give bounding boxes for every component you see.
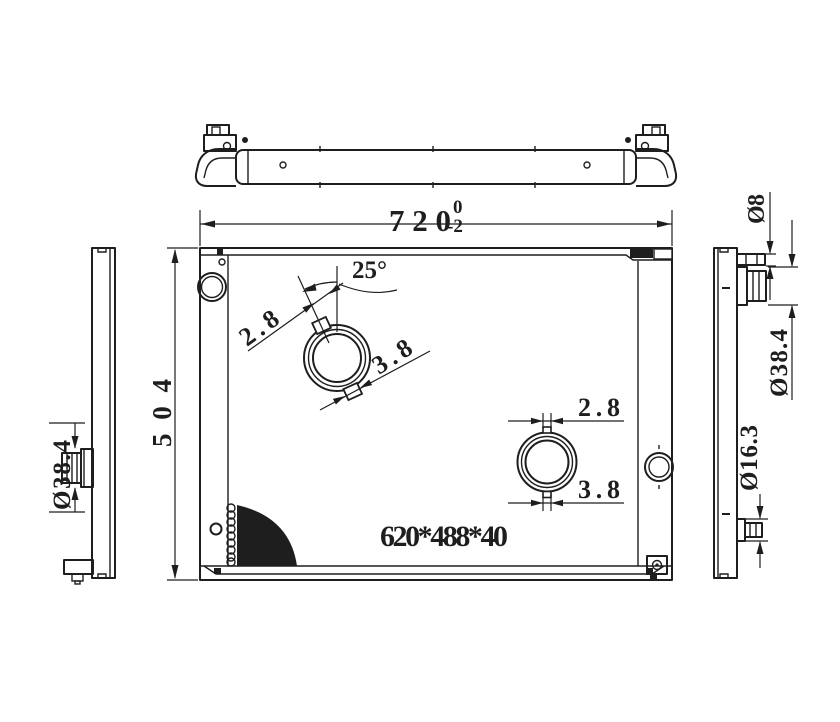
neck2-stub-bottom <box>543 492 551 498</box>
arrowhead-bottom <box>172 565 179 579</box>
arrowhead <box>757 541 764 554</box>
drain-diameter-value: Ø16.3 <box>736 425 763 491</box>
arrowhead <box>531 418 543 424</box>
dim-neck2-b: 3.8 <box>508 475 624 511</box>
top-right-pad <box>654 249 672 259</box>
drain-flange-cap <box>737 519 745 541</box>
arrowhead <box>789 254 796 267</box>
mount-pin <box>75 581 80 584</box>
extension-lines <box>768 267 798 305</box>
dim-neck-angle: 25° <box>298 257 397 343</box>
angle-value: 25° <box>352 257 387 284</box>
bleed-pipe-ribs <box>746 254 757 265</box>
arrowhead <box>551 500 563 506</box>
fitting-center <box>655 563 658 566</box>
left-profile-outline <box>92 248 115 578</box>
top-left-hole <box>219 259 225 265</box>
height-value: 504 <box>147 379 177 447</box>
bleed-diameter-value: Ø8 <box>744 194 770 224</box>
inlet-pipe-ribs <box>753 271 759 301</box>
neck1-dim-b-value: 3.8 <box>366 333 417 380</box>
width-value: 720 <box>389 203 451 238</box>
drain-pipe <box>745 523 762 537</box>
outlet-neck <box>518 427 577 498</box>
drain-hole <box>211 524 222 535</box>
neck1-dim-a-value: 2.8 <box>233 304 284 352</box>
arrowhead <box>333 396 345 405</box>
neck1-mid-ring <box>309 330 366 387</box>
arrowhead <box>767 266 774 279</box>
inlet-flange-diameter-value: Ø38.4 <box>766 329 793 398</box>
width-tolerance-upper: 0 <box>453 197 463 218</box>
tank-bar-outline <box>236 150 636 184</box>
top-right-bracket <box>630 249 653 258</box>
extension-lines <box>766 254 776 266</box>
joint-ticks <box>320 146 535 188</box>
right-elbow-outline <box>636 149 676 186</box>
dim-overall-height: 504 <box>147 248 198 580</box>
left-elbow-inner <box>204 158 236 178</box>
neck2-stub-top <box>543 427 551 433</box>
left-outlet-diameter-value: Ø38.4 <box>49 440 76 511</box>
neck2-dim-b-value: 3.8 <box>578 475 620 504</box>
top-view <box>196 125 676 188</box>
end-cap-lines <box>248 150 624 184</box>
inlet-flange-cap <box>737 267 747 305</box>
right-bracket-tab <box>652 127 660 135</box>
right-side-view <box>714 248 766 578</box>
rivet-hole <box>584 162 590 168</box>
radiator-technical-drawing: 720 0 -2 <box>0 0 840 722</box>
width-tolerance-lower: -2 <box>447 216 463 237</box>
right-port-inner <box>649 457 669 477</box>
dim-neck1-b: 3.8 <box>320 333 430 410</box>
arrowhead <box>531 500 543 506</box>
right-clamp-dot <box>625 137 631 143</box>
dim-right-drain: Ø16.3 <box>736 425 768 568</box>
left-bracket-tab <box>212 127 220 135</box>
top-seam-line <box>200 255 672 260</box>
arc-arrowhead <box>302 284 317 293</box>
neck1-bore <box>313 334 361 382</box>
edge-notches <box>98 248 106 578</box>
bleed-pipe <box>737 254 765 265</box>
edge-notches <box>720 248 728 578</box>
fin-section-detail <box>237 505 297 566</box>
drain-pipe-ribs <box>750 523 756 537</box>
dim-left-outlet: Ø38.4 <box>49 423 85 512</box>
core-size-label: 620*488*40 <box>380 520 508 553</box>
left-elbow-outline <box>196 149 236 186</box>
arrowhead-top <box>172 249 179 263</box>
neck2-dim-a-value: 2.8 <box>578 393 620 422</box>
fitting-foot <box>650 574 657 580</box>
left-clamp-dot <box>242 137 248 143</box>
left-side-view <box>62 248 115 584</box>
arrowhead <box>757 506 764 519</box>
arrowhead-left <box>201 221 215 228</box>
dim-neck2-a: 2.8 <box>508 393 624 429</box>
rivet-hole <box>280 162 286 168</box>
arrowhead <box>789 305 796 318</box>
weld-dashes <box>722 288 730 514</box>
neck2-mid-ring <box>522 437 573 488</box>
right-elbow-inner <box>636 158 668 178</box>
arrowhead <box>551 418 563 424</box>
top-left-tab <box>217 249 223 255</box>
left-port-inner <box>202 277 223 298</box>
mount-bracket <box>64 560 93 574</box>
bottom-left-foot <box>214 568 221 574</box>
dim-right-bleed: Ø8 <box>744 192 776 300</box>
neck2-bore <box>526 441 569 484</box>
drawing-page: 720 0 -2 <box>0 0 840 722</box>
mount-foot <box>72 574 83 581</box>
angle-leader <box>339 284 397 292</box>
inlet-pipe <box>747 271 766 301</box>
arrowhead <box>767 241 774 254</box>
arrowhead-right <box>657 221 671 228</box>
dim-overall-width: 720 0 -2 <box>200 197 672 246</box>
bottom-band <box>204 566 664 574</box>
